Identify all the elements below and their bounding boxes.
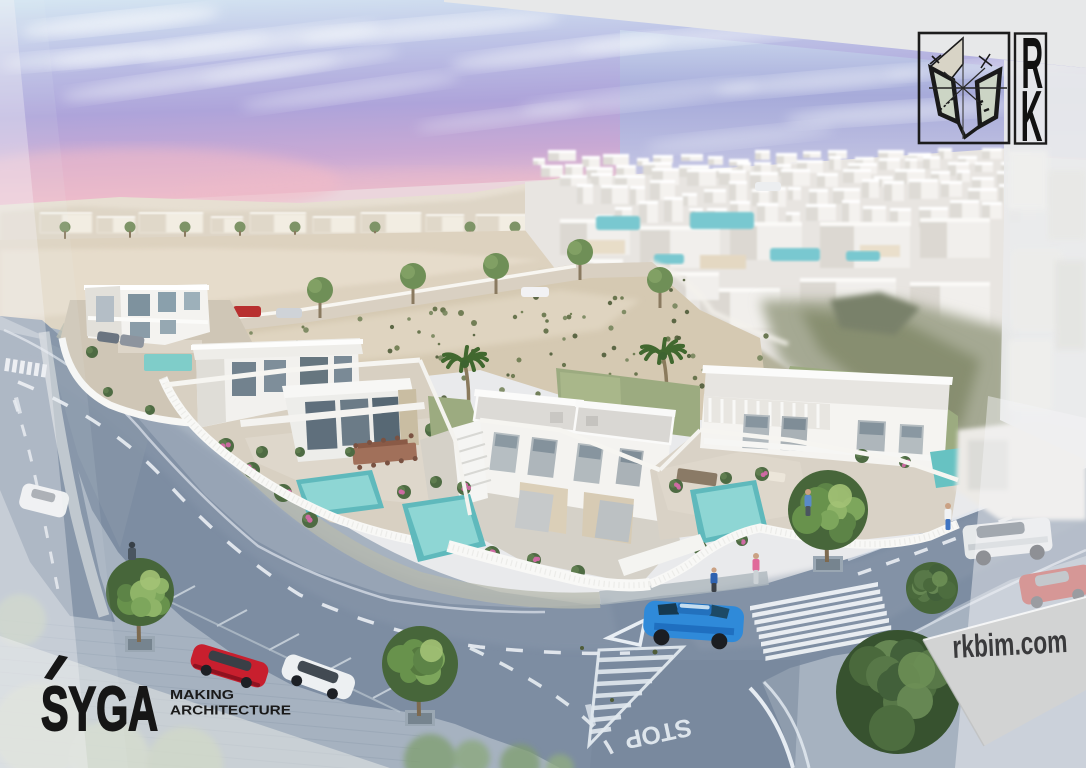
svg-text:SYGA: SYGA [41,675,158,744]
svg-text:K: K [1021,76,1043,157]
svg-text:rkbim.com: rkbim.com [951,623,1068,665]
svg-text:ARCHITECTURE: ARCHITECTURE [170,703,291,718]
svg-text:MAKING: MAKING [170,687,234,702]
